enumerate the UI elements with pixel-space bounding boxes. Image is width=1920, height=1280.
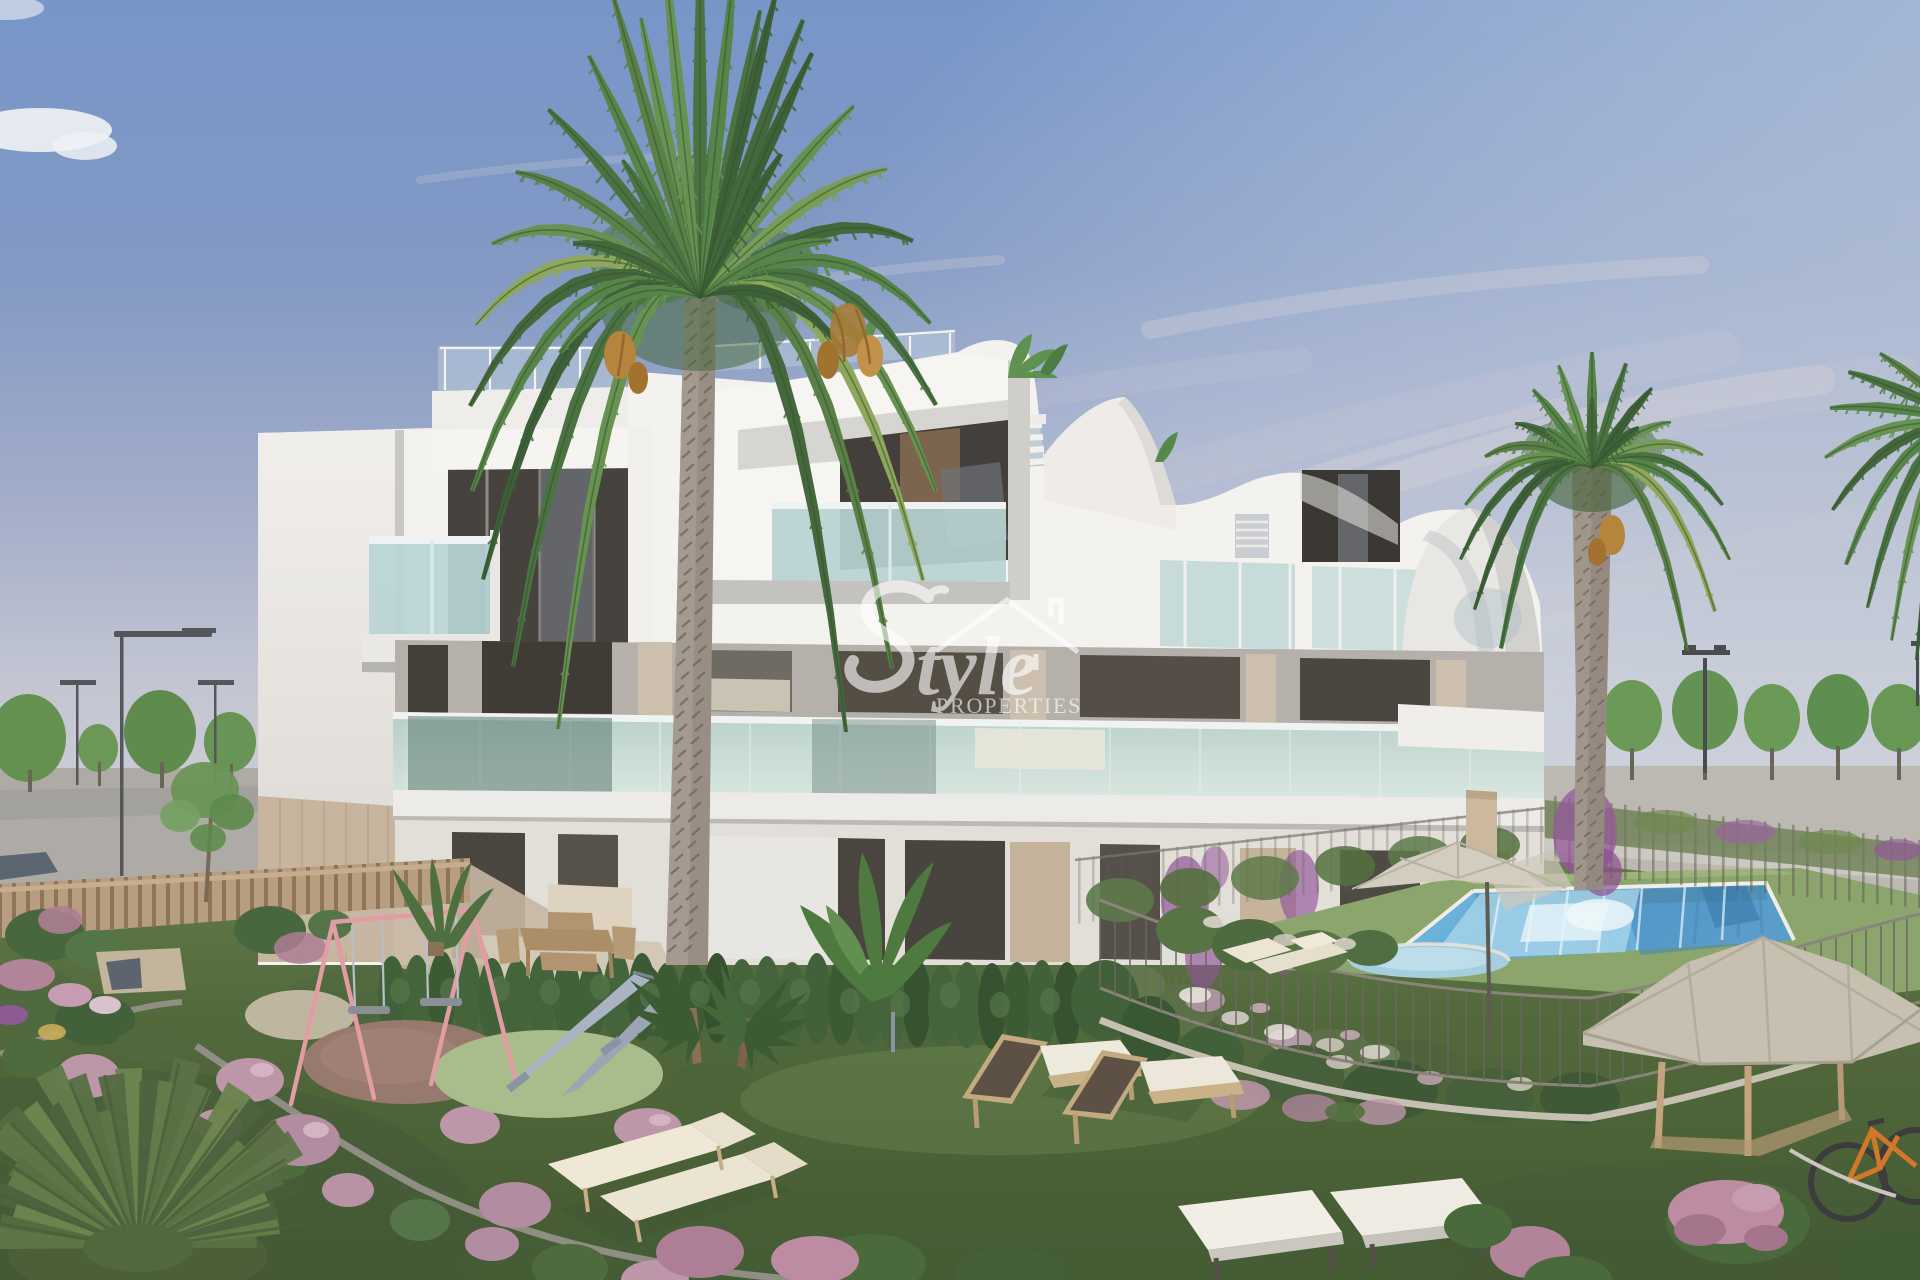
svg-text:PROPERTIES: PROPERTIES [936,693,1082,718]
